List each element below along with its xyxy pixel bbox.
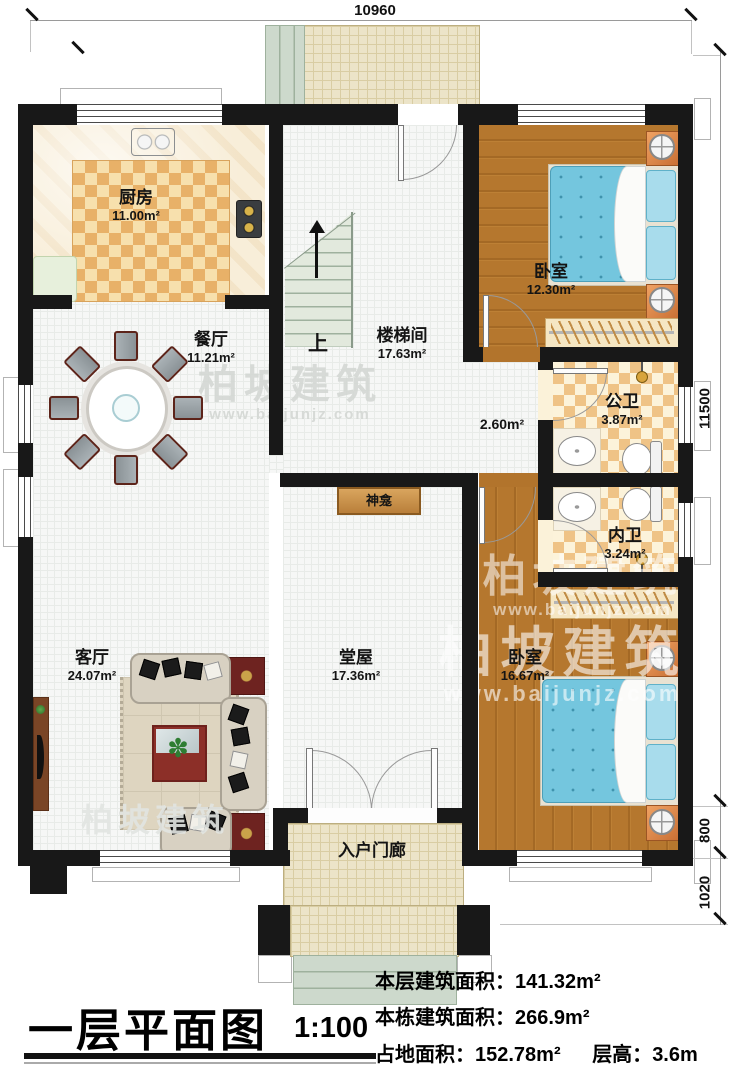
window-sill <box>92 867 240 882</box>
stat-label: 占地面积： <box>375 1044 475 1066</box>
wall <box>553 473 678 487</box>
cabinet-plant <box>36 705 45 714</box>
stairs-direction-arrow <box>315 232 318 278</box>
kitchen-rug <box>72 160 230 302</box>
window-sill <box>694 98 711 140</box>
bed-pillow <box>646 684 676 740</box>
room-name: 堂屋 <box>306 648 406 668</box>
wall <box>230 850 290 866</box>
wall <box>33 295 72 309</box>
stats-line-1: 本层建筑面积：141.32m² <box>375 965 601 994</box>
nightstand-lamp <box>649 645 675 671</box>
nightstand-lamp <box>649 287 675 313</box>
bathroom-sink <box>558 492 596 522</box>
room-label-bedroom-top: 卧室 12.30m² <box>501 262 601 298</box>
room-label-bedroom-bottom: 卧室 16.67m² <box>475 648 575 684</box>
wall <box>678 104 693 387</box>
room-name: 客厅 <box>42 648 142 668</box>
entry-porch-floor <box>283 823 464 909</box>
wall <box>273 823 288 850</box>
floor-plan: 神龛 ✽ <box>0 0 750 1081</box>
stat-label: 层高： <box>592 1044 652 1066</box>
wall <box>18 104 33 385</box>
bed-blanket <box>614 166 646 282</box>
window <box>100 850 230 866</box>
shrine-label: 神龛 <box>366 493 392 508</box>
room-label-corridor: 2.60m² <box>462 416 542 433</box>
door-leaf <box>553 368 608 374</box>
room-label-living: 客厅 24.07m² <box>42 648 142 684</box>
wall <box>540 347 693 362</box>
stove <box>236 200 262 238</box>
window <box>18 385 33 443</box>
wall <box>225 295 283 309</box>
room-label-stairwell: 楼梯间 17.63m² <box>352 326 452 362</box>
window-sill <box>694 497 711 565</box>
wall <box>678 443 693 503</box>
shrine: 神龛 <box>337 487 421 515</box>
window-sill <box>60 88 222 105</box>
window <box>518 104 645 125</box>
window <box>678 387 693 443</box>
stat-value: 141.32m² <box>515 971 601 993</box>
wall <box>18 443 33 477</box>
window <box>678 503 693 557</box>
dimension-line-right <box>720 50 721 925</box>
stairs-up-text: 上 <box>308 333 328 355</box>
extension-line <box>30 20 31 52</box>
window <box>517 850 642 866</box>
room-area: 2.60m² <box>462 416 542 433</box>
room-name: 餐厅 <box>161 330 261 350</box>
wall <box>463 122 479 347</box>
wall <box>462 850 517 866</box>
door-opening <box>308 808 437 823</box>
dining-table-center <box>112 394 140 422</box>
bed-blanket <box>614 679 646 803</box>
toilet-tank <box>650 441 662 477</box>
door-opening <box>538 520 553 572</box>
side-table <box>228 657 265 695</box>
door-opening <box>538 368 553 420</box>
floor-patch <box>269 455 283 473</box>
side-table <box>228 813 265 854</box>
room-area: 3.87m² <box>572 412 672 428</box>
room-name: 卧室 <box>501 262 601 282</box>
title-underline <box>24 1053 376 1059</box>
stat-value: 266.9m² <box>515 1007 590 1029</box>
dimension-right-value: 11500 <box>697 377 714 441</box>
wall <box>222 104 398 125</box>
window <box>77 104 222 125</box>
wardrobe-hangers <box>556 592 672 614</box>
room-area: 11.00m² <box>86 208 186 224</box>
door-opening <box>479 473 538 487</box>
drawing-title: 一层平面图 <box>28 994 268 1059</box>
wall <box>463 347 483 362</box>
potted-plant: ✽ <box>164 734 192 762</box>
bed-pillow <box>646 170 676 222</box>
room-label-public-bath: 公卫 3.87m² <box>572 392 672 428</box>
title-underline-thin <box>24 1062 376 1064</box>
door-leaf <box>479 487 485 544</box>
drawing-title-text: 一层平面图 <box>28 1005 268 1056</box>
stat-value: 3.6m <box>652 1044 698 1066</box>
drawing-scale-text: 1:100 <box>294 1012 368 1044</box>
wall <box>273 808 308 823</box>
pendant-light <box>636 371 648 383</box>
wall <box>538 362 553 370</box>
room-name: 楼梯间 <box>352 326 452 346</box>
room-label-hall: 堂屋 17.36m² <box>306 648 406 684</box>
stats-line-2: 本栋建筑面积：266.9m² <box>375 1001 590 1030</box>
sofa-cushion <box>161 657 181 677</box>
drawing-scale: 1:100 <box>294 1012 368 1045</box>
extension-line <box>500 924 728 925</box>
stat-label: 本层建筑面积： <box>375 971 515 993</box>
porch-pillar <box>457 905 490 955</box>
sofa-cushion <box>184 661 203 680</box>
dimension-top-value: 10960 <box>330 2 420 19</box>
room-area: 17.36m² <box>306 668 406 684</box>
stairs-arrow-head <box>309 220 325 233</box>
toilet-tank <box>650 486 662 522</box>
toilet-bowl <box>622 443 652 476</box>
room-area: 3.24m² <box>575 546 675 562</box>
dining-chair <box>114 455 138 485</box>
room-area: 16.67m² <box>475 668 575 684</box>
room-name: 公卫 <box>572 392 672 412</box>
bed-pillow <box>646 744 676 800</box>
wardrobe-hangers <box>551 321 672 344</box>
stat-value: 152.78m² <box>475 1044 561 1066</box>
door-leaf <box>483 295 489 349</box>
bathroom-sink <box>558 436 596 466</box>
room-area: 12.30m² <box>501 282 601 298</box>
dimension-800-value: 800 <box>697 804 714 858</box>
dimension-tick <box>71 41 84 54</box>
extension-line <box>693 55 721 56</box>
stats-line-3: 占地面积：152.78m² 层高：3.6m <box>375 1038 698 1067</box>
window <box>18 477 33 537</box>
dining-chair <box>49 396 79 420</box>
room-label-dining: 餐厅 11.21m² <box>161 330 261 366</box>
nightstand-lamp <box>649 134 675 160</box>
extension-line <box>691 20 692 54</box>
room-label-porch: 入户门廊 <box>302 841 442 861</box>
sofa-cushion <box>231 727 251 747</box>
label-stairs-up: 上 <box>300 332 336 356</box>
porch-pillar-base <box>258 955 292 983</box>
nightstand-lamp <box>649 809 675 835</box>
terrace-steps <box>265 25 305 105</box>
room-label-private-bath: 内卫 3.24m² <box>575 526 675 562</box>
room-area: 17.63m² <box>352 346 452 362</box>
kitchen-sink <box>131 128 175 156</box>
room-name: 卧室 <box>475 648 575 668</box>
wall-pilaster <box>30 862 67 894</box>
stat-label: 本栋建筑面积： <box>375 1007 515 1029</box>
dimension-line-top <box>30 20 692 21</box>
wall <box>538 572 693 587</box>
wall <box>269 122 283 455</box>
entry-door-leaf <box>306 748 313 812</box>
sofa-cushion <box>230 751 249 770</box>
dining-chair <box>173 396 203 420</box>
room-name: 入户门廊 <box>338 841 406 860</box>
dimension-1020-value: 1020 <box>697 866 714 920</box>
dining-chair <box>114 331 138 361</box>
door-leaf <box>398 125 404 181</box>
toilet-bowl <box>622 488 652 521</box>
wall <box>280 473 463 487</box>
wall <box>18 537 33 850</box>
door-opening <box>483 347 540 362</box>
door-opening <box>398 104 458 125</box>
room-area: 11.21m² <box>161 350 261 366</box>
wall <box>642 850 693 866</box>
wall <box>678 557 693 850</box>
entry-porch-floor <box>290 905 459 957</box>
wall <box>538 420 553 520</box>
porch-pillar <box>258 905 290 955</box>
room-name: 厨房 <box>86 188 186 208</box>
room-name: 内卫 <box>575 526 675 546</box>
room-label-kitchen: 厨房 11.00m² <box>86 188 186 224</box>
window-sill <box>509 867 652 882</box>
room-area: 24.07m² <box>42 668 142 684</box>
entry-door-leaf <box>431 748 438 812</box>
bed-pillow <box>646 226 676 280</box>
terrace <box>303 25 480 105</box>
